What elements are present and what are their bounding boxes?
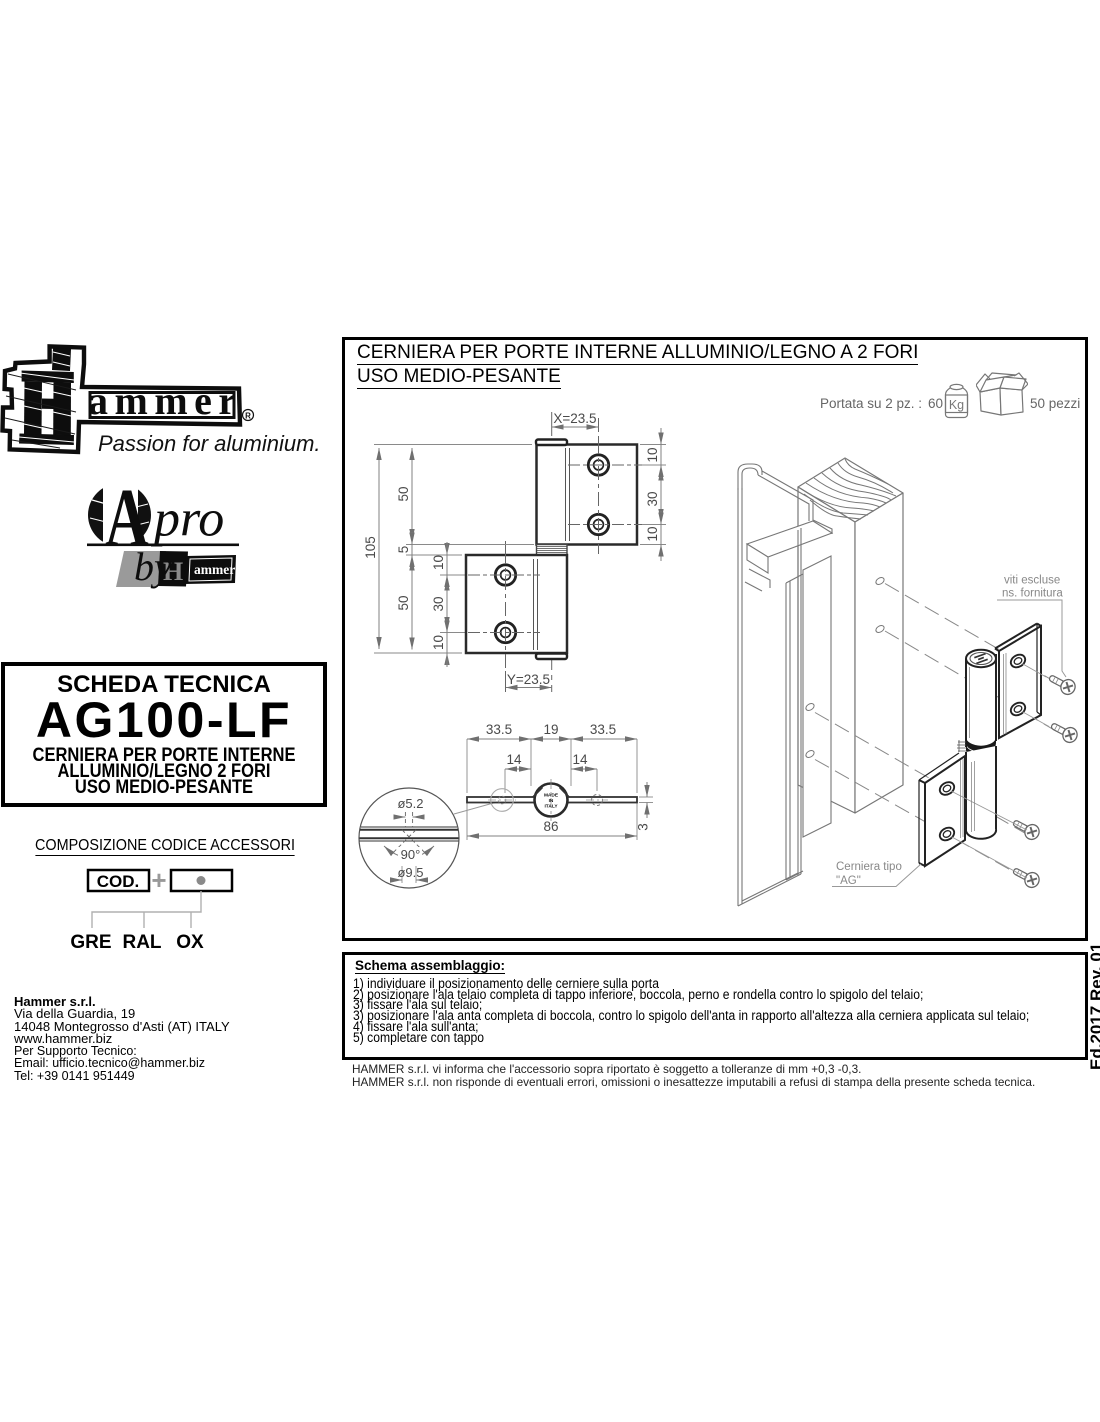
svg-text:MADE: MADE xyxy=(544,793,559,799)
svg-text:90°: 90° xyxy=(401,847,421,862)
svg-text:ns. fornitura: ns. fornitura xyxy=(1002,588,1063,600)
svg-text:pro: pro xyxy=(150,491,224,548)
svg-text:ammer: ammer xyxy=(194,562,235,577)
svg-text:5: 5 xyxy=(396,546,411,554)
svg-text:10: 10 xyxy=(431,555,446,570)
svg-text:+: + xyxy=(151,865,166,895)
svg-text:R: R xyxy=(245,412,251,421)
svg-text:COD.: COD. xyxy=(97,872,140,891)
svg-text:X=23.5: X=23.5 xyxy=(553,411,596,426)
svg-text:Y=23.5: Y=23.5 xyxy=(507,672,550,687)
svg-text:IN: IN xyxy=(549,798,554,804)
svg-text:ammer: ammer xyxy=(88,378,243,423)
svg-text:OX: OX xyxy=(176,932,204,953)
svg-text:ø5.2: ø5.2 xyxy=(397,796,423,811)
svg-text:33.5: 33.5 xyxy=(486,722,512,737)
svg-text:30: 30 xyxy=(431,596,446,611)
svg-text:ø9.5: ø9.5 xyxy=(397,865,423,880)
svg-text:50: 50 xyxy=(396,486,411,501)
svg-text:30: 30 xyxy=(645,491,660,506)
svg-text:Cerniera tipo: Cerniera tipo xyxy=(836,861,902,873)
svg-text:viti escluse: viti escluse xyxy=(1004,575,1060,587)
svg-text:"AG": "AG" xyxy=(836,875,861,887)
svg-text:ITALY: ITALY xyxy=(544,804,558,810)
svg-text:105: 105 xyxy=(363,536,378,559)
svg-text:3: 3 xyxy=(636,823,651,831)
svg-text:86: 86 xyxy=(543,819,558,834)
svg-text:19: 19 xyxy=(543,722,558,737)
svg-text:GRE: GRE xyxy=(70,932,111,953)
svg-text:10: 10 xyxy=(645,447,660,462)
svg-text:14: 14 xyxy=(506,752,522,767)
svg-text:Kg: Kg xyxy=(949,398,964,412)
svg-text:10: 10 xyxy=(645,526,660,541)
svg-text:RAL: RAL xyxy=(122,932,161,953)
svg-text:10: 10 xyxy=(431,635,446,650)
svg-text:50: 50 xyxy=(396,595,411,610)
svg-text:33.5: 33.5 xyxy=(590,722,616,737)
svg-text:by: by xyxy=(134,544,172,589)
svg-text:14: 14 xyxy=(572,752,588,767)
